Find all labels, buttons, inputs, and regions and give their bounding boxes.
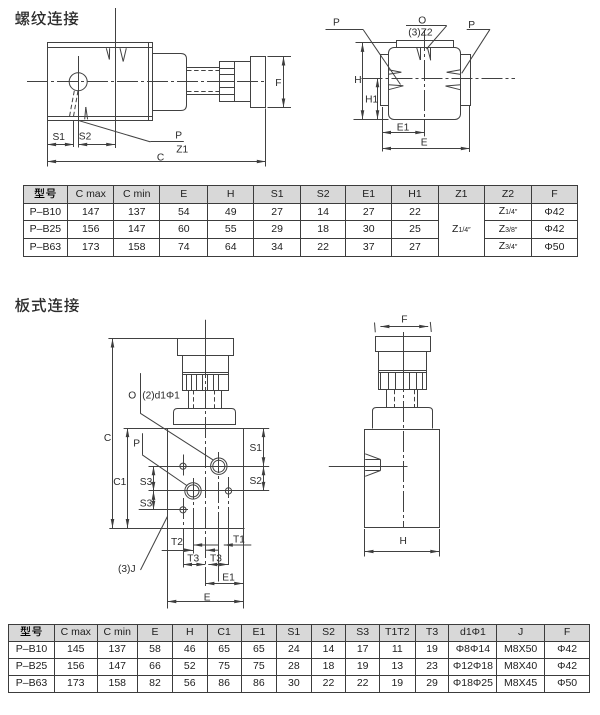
- svg-text:T3: T3: [187, 553, 199, 564]
- svg-text:(3)Z2: (3)Z2: [408, 27, 433, 38]
- svg-text:E1: E1: [222, 573, 235, 584]
- svg-text:F: F: [401, 315, 407, 326]
- svg-text:H: H: [354, 75, 361, 86]
- svg-text:S2: S2: [79, 132, 92, 143]
- svg-text:H: H: [400, 536, 407, 547]
- svg-text:T3: T3: [210, 553, 222, 564]
- svg-text:F: F: [275, 78, 281, 89]
- svg-text:O: O: [418, 15, 426, 26]
- svg-text:O: O: [128, 390, 136, 401]
- svg-text:P: P: [333, 18, 340, 29]
- svg-text:C: C: [104, 433, 111, 444]
- svg-text:E1: E1: [397, 122, 410, 133]
- svg-text:(3)J: (3)J: [118, 564, 136, 575]
- svg-text:E: E: [204, 592, 211, 603]
- svg-text:S3: S3: [140, 498, 153, 509]
- svg-text:T2: T2: [171, 537, 183, 548]
- svg-text:(2)d1Φ1: (2)d1Φ1: [142, 390, 180, 401]
- svg-text:P: P: [175, 131, 182, 142]
- svg-text:T1: T1: [233, 534, 245, 545]
- svg-text:E: E: [421, 138, 428, 149]
- svg-text:S3: S3: [140, 477, 153, 488]
- svg-text:C: C: [157, 153, 164, 164]
- svg-text:P: P: [133, 438, 140, 449]
- svg-text:C1: C1: [113, 477, 126, 488]
- svg-text:S2: S2: [250, 476, 263, 487]
- svg-text:S1: S1: [250, 443, 263, 454]
- svg-text:S1: S1: [53, 132, 66, 143]
- svg-text:Z1: Z1: [176, 144, 188, 155]
- svg-text:H1: H1: [365, 94, 378, 105]
